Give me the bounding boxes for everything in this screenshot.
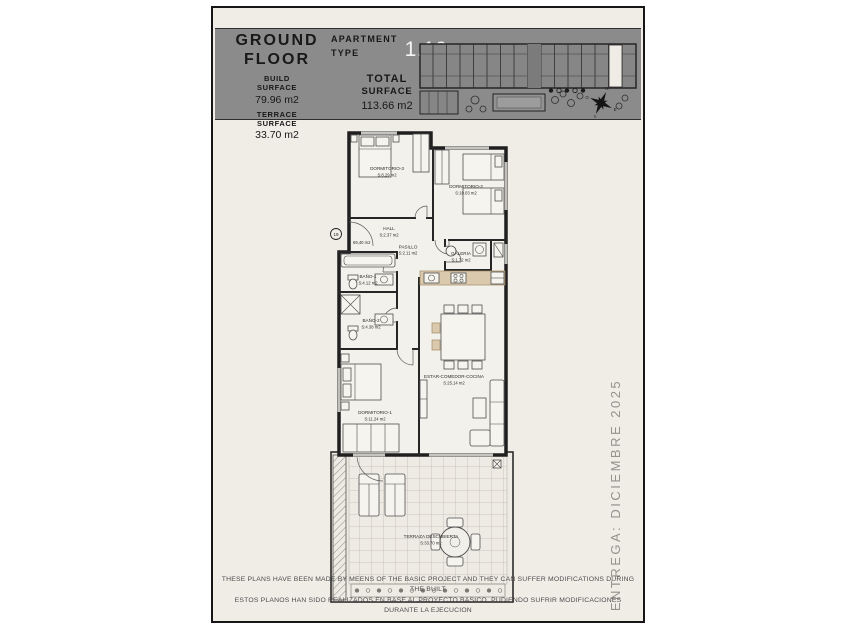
room-label: TERRAZA DESCUBIERTA xyxy=(404,534,460,539)
floor-title-line2: FLOOR xyxy=(225,51,329,70)
room-area: S:8.29 m2 xyxy=(377,173,397,178)
scanned-plan-image: GROUND FLOOR BUILD SURFACE 79.96 m2 TERR… xyxy=(0,0,856,633)
build-surface-label2: SURFACE xyxy=(225,83,329,92)
terrace-surface-label2: SURFACE xyxy=(225,119,329,128)
build-surface-value: 79.96 m2 xyxy=(225,94,329,106)
compass-n-label: N xyxy=(605,86,608,91)
disclaimer: THESE PLANS HAVE BEEN MADE BY MEENS OF T… xyxy=(221,575,635,616)
room-area: S:33.70 m2 xyxy=(420,541,442,546)
kitchen-furniture xyxy=(420,271,505,285)
compass-o-label: O xyxy=(585,95,589,100)
header-band: GROUND FLOOR BUILD SURFACE 79.96 m2 TERR… xyxy=(215,28,641,120)
apartment-label-line2: TYPE xyxy=(331,47,398,61)
room-area: S:2.11 m2 xyxy=(399,251,418,256)
site-corridor xyxy=(528,44,542,88)
plan-sheet: GROUND FLOOR BUILD SURFACE 79.96 m2 TERR… xyxy=(211,6,645,623)
sun-lounger xyxy=(385,474,405,516)
floor-title: GROUND FLOOR xyxy=(225,32,329,70)
room-label: HALL xyxy=(383,226,395,231)
build-surface: BUILD SURFACE 79.96 m2 xyxy=(225,74,329,106)
room-label: DORMITORIO-1 xyxy=(358,410,392,415)
room-area: S:11.24 m2 xyxy=(364,417,386,422)
room-label: DORMITORIO-3 xyxy=(370,166,404,171)
useful-surface-value: 69,40 m2 xyxy=(353,240,371,245)
disclaimer-en: THESE PLANS HAVE BEEN MADE BY MEENS OF T… xyxy=(221,575,635,595)
apartment-label-line1: APARTMENT xyxy=(331,33,398,47)
room-area: S:1.72 m2 xyxy=(451,258,471,263)
build-surface-label1: BUILD xyxy=(225,74,329,83)
site-planting-dots xyxy=(549,88,585,92)
floor-title-line1: GROUND xyxy=(225,32,329,51)
room-label: BAÑO-2 xyxy=(362,317,380,323)
room-area: S:25.14 m2 xyxy=(443,381,465,386)
compass-s-label: S xyxy=(594,115,597,119)
unit-number-badge: 19 xyxy=(331,229,342,240)
terrace-drain xyxy=(493,460,501,468)
floor-plan-drawing: 19 69,40 m2 DORMITORIO-3 S:8.29 m2 DORMI… xyxy=(323,118,523,618)
site-key-plan: N E S O xyxy=(415,30,643,118)
terrace-surface-value: 33.70 m2 xyxy=(225,129,329,141)
room-area: S:2.37 m2 xyxy=(379,233,399,238)
floor-summary-block: GROUND FLOOR BUILD SURFACE 79.96 m2 TERR… xyxy=(225,32,329,141)
room-area: S:4.38 m2 xyxy=(361,325,381,330)
room-label: PASILLO xyxy=(399,245,418,250)
room-label: DORMITORIO-2 xyxy=(449,184,483,189)
room-area: S:4.12 m2 xyxy=(358,281,378,286)
terrace-surface: TERRACE SURFACE 33.70 m2 xyxy=(225,110,329,142)
disclaimer-es: ESTOS PLANOS HAN SIDO REALIZADOS EN BASE… xyxy=(221,596,635,616)
unit-number: 19 xyxy=(333,232,339,237)
room-area: S:10.03 m2 xyxy=(455,191,477,196)
site-annex-block xyxy=(420,91,458,114)
room-label: BAÑO-1 xyxy=(359,273,377,279)
site-highlighted-unit xyxy=(609,45,622,87)
compass-rose-icon: N E S O xyxy=(585,86,617,118)
room-label: GALERIA xyxy=(451,251,472,256)
compass-e-label: E xyxy=(614,107,617,112)
terrace-surface-label1: TERRACE xyxy=(225,110,329,119)
room-label: ESTAR-COMEDOR-COCINA xyxy=(424,374,485,379)
